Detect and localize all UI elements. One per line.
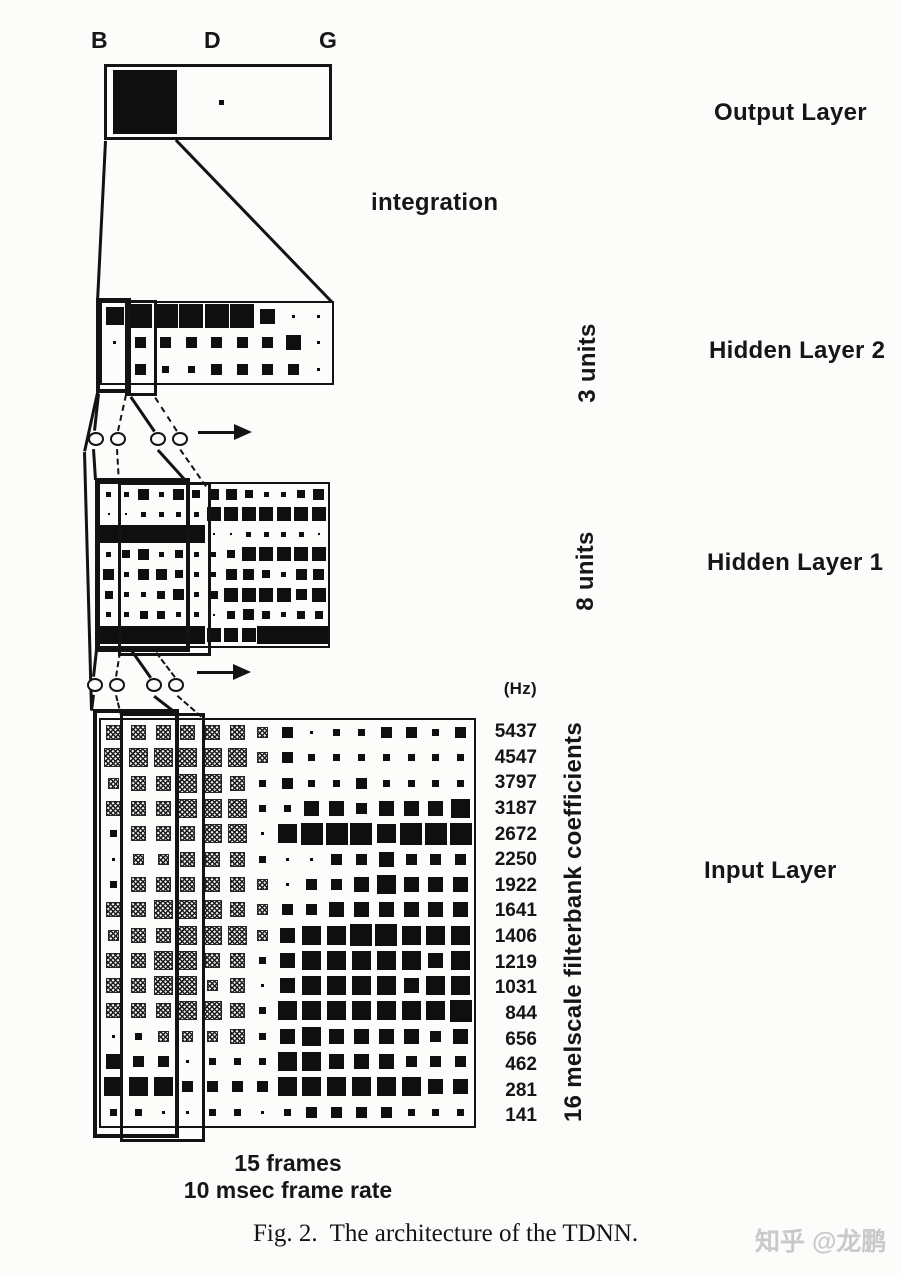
- weight-cell: [381, 1107, 392, 1118]
- weight-cell: [277, 588, 291, 602]
- weight-cell: [306, 1107, 317, 1118]
- weight-cell: [377, 1001, 396, 1020]
- weight-cell: [242, 507, 256, 521]
- weight-cell: [259, 780, 266, 787]
- weight-cell: [281, 532, 286, 537]
- frequency-label: 1406: [437, 926, 537, 948]
- weight-cell: [228, 824, 247, 843]
- weight-cell: [302, 926, 321, 945]
- connector-line: [117, 395, 127, 431]
- weight-cell: [226, 569, 237, 580]
- weight-cell: [230, 1003, 245, 1018]
- connector-line: [93, 650, 98, 677]
- weight-cell: [315, 611, 323, 619]
- weight-cell: [312, 588, 326, 602]
- weight-cell: [257, 626, 275, 644]
- weight-cell: [306, 904, 317, 915]
- tied-weight-circle: [110, 432, 126, 446]
- weight-cell: [257, 904, 268, 915]
- tied-weight-circle: [87, 678, 103, 692]
- weight-cell: [232, 1081, 243, 1092]
- weight-cell: [237, 364, 248, 375]
- hidden-layer-2-units-label: 3 units: [574, 313, 602, 413]
- weight-cell: [404, 1029, 419, 1044]
- weight-cell: [234, 1109, 241, 1116]
- melscale-coefficients-label: 16 melscale filterbank coefficients: [560, 687, 590, 1157]
- frequency-label: 281: [437, 1080, 537, 1102]
- weight-cell: [209, 1058, 216, 1065]
- weight-cell: [404, 978, 419, 993]
- weight-cell: [377, 976, 396, 995]
- weight-cell: [261, 1111, 264, 1114]
- weight-cell: [402, 926, 421, 945]
- weight-cell: [329, 801, 344, 816]
- weight-cell: [259, 1058, 266, 1065]
- weight-cell: [113, 70, 177, 134]
- weight-cell: [375, 924, 397, 946]
- weight-cell: [354, 877, 369, 892]
- weight-cell: [302, 1027, 321, 1046]
- weight-cell: [333, 780, 340, 787]
- weight-cell: [327, 926, 346, 945]
- weight-cell: [383, 780, 390, 787]
- weight-cell: [207, 980, 218, 991]
- weight-cell: [227, 611, 235, 619]
- frequency-label: 3187: [437, 798, 537, 820]
- connector-line: [97, 141, 107, 302]
- weight-cell: [358, 729, 365, 736]
- weight-cell: [377, 1077, 396, 1096]
- integration-label: integration: [371, 189, 498, 217]
- frames-footnote: 15 frames 10 msec frame rate: [128, 1150, 448, 1204]
- weight-cell: [294, 507, 308, 521]
- connector-line: [84, 452, 93, 710]
- weight-cell: [207, 1031, 218, 1042]
- output-layer-box: [104, 64, 332, 140]
- weight-cell: [404, 801, 419, 816]
- weight-cell: [277, 507, 291, 521]
- weight-cell: [333, 754, 340, 761]
- weight-cell: [205, 852, 220, 867]
- weight-cell: [213, 533, 215, 535]
- hz-unit-label: (Hz): [437, 679, 537, 699]
- weight-cell: [203, 824, 222, 843]
- weight-cell: [234, 1058, 241, 1065]
- weight-cell: [230, 978, 245, 993]
- weight-cell: [242, 628, 256, 642]
- weight-cell: [237, 337, 248, 348]
- weight-cell: [211, 337, 222, 348]
- weight-cell: [219, 100, 224, 105]
- weight-cell: [230, 533, 232, 535]
- weight-cell: [381, 727, 392, 738]
- weight-cell: [304, 801, 319, 816]
- weight-cell: [310, 626, 328, 644]
- weight-cell: [352, 1001, 371, 1020]
- weight-cell: [230, 1029, 245, 1044]
- weight-cell: [354, 1054, 369, 1069]
- weight-cell: [259, 507, 273, 521]
- weight-cell: [259, 588, 273, 602]
- weight-cell: [292, 626, 310, 644]
- weight-cell: [262, 570, 270, 578]
- weight-cell: [331, 1107, 342, 1118]
- weight-cell: [297, 490, 305, 498]
- weight-cell: [286, 883, 289, 886]
- weight-cell: [262, 364, 273, 375]
- connector-line: [154, 397, 178, 432]
- weight-cell: [257, 727, 268, 738]
- weight-cell: [228, 748, 247, 767]
- weight-cell: [203, 799, 222, 818]
- weight-cell: [230, 852, 245, 867]
- weight-cell: [327, 1077, 346, 1096]
- weight-cell: [379, 1054, 394, 1069]
- weight-cell: [317, 341, 320, 344]
- output-layer-units: [107, 67, 329, 137]
- weight-cell: [356, 803, 367, 814]
- frequency-label: 1641: [437, 900, 537, 922]
- weight-cell: [162, 366, 169, 373]
- weight-cell: [242, 588, 256, 602]
- frame-window: [118, 482, 211, 656]
- phoneme-label-d: D: [204, 27, 221, 54]
- weight-cell: [203, 1001, 222, 1020]
- weight-cell: [186, 337, 197, 348]
- weight-cell: [257, 879, 268, 890]
- weight-cell: [179, 304, 203, 328]
- weight-cell: [318, 533, 320, 535]
- weight-cell: [262, 337, 273, 348]
- weight-cell: [284, 1109, 291, 1116]
- weight-cell: [211, 552, 216, 557]
- weight-cell: [356, 778, 367, 789]
- weight-cell: [282, 778, 293, 789]
- weight-cell: [302, 976, 321, 995]
- weight-cell: [205, 953, 220, 968]
- weight-cell: [379, 1029, 394, 1044]
- weight-cell: [278, 1052, 297, 1071]
- weight-cell: [243, 569, 254, 580]
- weight-cell: [282, 727, 293, 738]
- weight-cell: [259, 547, 273, 561]
- weight-cell: [203, 926, 222, 945]
- weight-cell: [354, 902, 369, 917]
- frequency-label: 4547: [437, 747, 537, 769]
- connector-line: [175, 139, 333, 303]
- frequency-label: 1031: [437, 977, 537, 999]
- weight-cell: [352, 976, 371, 995]
- weight-cell: [408, 1109, 415, 1116]
- weight-cell: [331, 854, 342, 865]
- weight-cell: [281, 572, 286, 577]
- connector-line: [130, 396, 156, 432]
- weight-cell: [224, 507, 238, 521]
- weight-cell: [243, 609, 254, 620]
- weight-cell: [282, 904, 293, 915]
- weight-cell: [203, 774, 222, 793]
- weight-cell: [302, 951, 321, 970]
- weight-cell: [280, 1029, 295, 1044]
- weight-cell: [313, 569, 324, 580]
- weight-cell: [259, 1007, 266, 1014]
- weight-cell: [260, 309, 275, 324]
- weight-cell: [377, 951, 396, 970]
- weight-cell: [286, 335, 301, 350]
- frequency-label: 844: [437, 1003, 537, 1025]
- frame-window: [125, 300, 157, 396]
- weight-cell: [406, 1056, 417, 1067]
- weight-cell: [356, 854, 367, 865]
- weight-cell: [246, 532, 251, 537]
- weight-cell: [211, 572, 216, 577]
- weight-cell: [280, 978, 295, 993]
- tied-weight-circle: [88, 432, 104, 446]
- weight-cell: [350, 924, 372, 946]
- weight-cell: [278, 1077, 297, 1096]
- weight-cell: [331, 879, 342, 890]
- weight-cell: [245, 490, 253, 498]
- weight-cell: [226, 489, 237, 500]
- weight-cell: [402, 1077, 421, 1096]
- weight-cell: [327, 1001, 346, 1020]
- weight-cell: [404, 902, 419, 917]
- weight-cell: [308, 780, 315, 787]
- zhihu-watermark: 知乎 @龙鹏: [755, 1222, 886, 1258]
- weight-cell: [278, 1001, 297, 1020]
- weight-cell: [317, 368, 320, 371]
- weight-cell: [406, 854, 417, 865]
- weight-cell: [402, 1001, 421, 1020]
- weight-cell: [278, 824, 297, 843]
- frequency-label: 656: [437, 1029, 537, 1051]
- weight-cell: [299, 532, 304, 537]
- weight-cell: [264, 492, 269, 497]
- weight-cell: [350, 823, 372, 845]
- weight-cell: [224, 628, 238, 642]
- weight-cell: [282, 752, 293, 763]
- weight-cell: [205, 725, 220, 740]
- weight-cell: [230, 304, 254, 328]
- weight-cell: [209, 1109, 216, 1116]
- weight-cell: [230, 902, 245, 917]
- tied-weight-circle: [146, 678, 162, 692]
- weight-cell: [205, 304, 229, 328]
- weight-cell: [329, 1054, 344, 1069]
- weight-cell: [257, 930, 268, 941]
- weight-cell: [301, 823, 323, 845]
- weight-cell: [296, 589, 307, 600]
- weight-cell: [188, 366, 195, 373]
- weight-cell: [207, 1081, 218, 1092]
- frequency-label: 5437: [437, 721, 537, 743]
- weight-cell: [379, 852, 394, 867]
- connector-line: [93, 449, 97, 480]
- frequency-label: 2250: [437, 849, 537, 871]
- weight-cell: [259, 856, 266, 863]
- weight-cell: [224, 588, 238, 602]
- weight-cell: [383, 754, 390, 761]
- weight-cell: [312, 507, 326, 521]
- weight-cell: [310, 731, 313, 734]
- weight-cell: [284, 805, 291, 812]
- weight-cell: [302, 1052, 321, 1071]
- tied-weight-circle: [150, 432, 166, 446]
- weight-cell: [228, 799, 247, 818]
- weight-cell: [242, 547, 256, 561]
- weight-cell: [230, 877, 245, 892]
- weight-cell: [302, 1001, 321, 1020]
- weight-cell: [230, 953, 245, 968]
- time-arrow-icon: [198, 431, 236, 434]
- tied-weight-circle: [109, 678, 125, 692]
- weight-cell: [292, 315, 295, 318]
- weight-cell: [308, 754, 315, 761]
- weight-cell: [327, 951, 346, 970]
- weight-cell: [213, 614, 215, 616]
- weight-cell: [281, 492, 286, 497]
- hidden-layer-1-label: Hidden Layer 1: [707, 549, 883, 577]
- weight-cell: [203, 748, 222, 767]
- weight-cell: [228, 926, 247, 945]
- hidden-layer-2-label: Hidden Layer 2: [709, 337, 885, 365]
- phoneme-label-g: G: [319, 27, 337, 54]
- frequency-label: 1922: [437, 875, 537, 897]
- weight-cell: [326, 823, 348, 845]
- weight-cell: [261, 832, 264, 835]
- weight-cell: [275, 626, 293, 644]
- weight-cell: [400, 823, 422, 845]
- weight-cell: [377, 824, 396, 843]
- frequency-label: 1219: [437, 952, 537, 974]
- hidden-layer-1-units-label: 8 units: [572, 521, 600, 621]
- weight-cell: [264, 532, 269, 537]
- weight-cell: [205, 877, 220, 892]
- figure-caption: Fig. 2. The architecture of the TDNN.: [253, 1220, 638, 1248]
- weight-cell: [356, 1107, 367, 1118]
- weight-cell: [404, 877, 419, 892]
- frequency-label: 2672: [437, 824, 537, 846]
- weight-cell: [203, 900, 222, 919]
- tdnn-figure: B D G Output Layer integration 3 units H…: [0, 0, 902, 1274]
- time-arrow-head-icon: [233, 664, 251, 680]
- frequency-label: 462: [437, 1054, 537, 1076]
- weight-cell: [294, 547, 308, 561]
- output-layer-label: Output Layer: [714, 99, 867, 127]
- weight-cell: [257, 1081, 268, 1092]
- weight-cell: [402, 951, 421, 970]
- phoneme-label-b: B: [91, 27, 108, 54]
- weight-cell: [379, 801, 394, 816]
- weight-cell: [281, 612, 286, 617]
- weight-cell: [211, 364, 222, 375]
- weight-cell: [280, 928, 295, 943]
- weight-cell: [277, 547, 291, 561]
- weight-cell: [280, 953, 295, 968]
- weight-cell: [306, 879, 317, 890]
- weight-cell: [406, 727, 417, 738]
- frequency-label: 141: [437, 1105, 537, 1127]
- time-arrow-head-icon: [234, 424, 252, 440]
- frames-count-label: 15 frames: [128, 1150, 448, 1177]
- weight-cell: [327, 976, 346, 995]
- time-arrow-icon: [197, 671, 235, 674]
- weight-cell: [310, 858, 313, 861]
- weight-cell: [352, 951, 371, 970]
- weight-cell: [312, 547, 326, 561]
- weight-cell: [354, 1029, 369, 1044]
- weight-cell: [154, 304, 178, 328]
- frame-window: [120, 713, 205, 1142]
- weight-cell: [259, 1033, 266, 1040]
- weight-cell: [358, 754, 365, 761]
- weight-cell: [297, 611, 305, 619]
- input-layer-label: Input Layer: [704, 857, 837, 885]
- tied-weight-circle: [172, 432, 188, 446]
- weight-cell: [377, 875, 396, 894]
- weight-cell: [408, 780, 415, 787]
- weight-cell: [261, 984, 264, 987]
- weight-cell: [296, 569, 307, 580]
- weight-cell: [160, 337, 171, 348]
- weight-cell: [262, 611, 270, 619]
- weight-cell: [333, 729, 340, 736]
- weight-cell: [379, 902, 394, 917]
- weight-cell: [288, 364, 299, 375]
- weight-cell: [230, 725, 245, 740]
- weight-cell: [259, 805, 266, 812]
- weight-cell: [259, 957, 266, 964]
- weight-cell: [317, 315, 320, 318]
- frame-rate-label: 10 msec frame rate: [128, 1177, 448, 1204]
- frequency-label: 3797: [437, 772, 537, 794]
- weight-cell: [257, 752, 268, 763]
- weight-cell: [313, 489, 324, 500]
- weight-cell: [227, 550, 235, 558]
- weight-cell: [286, 858, 289, 861]
- weight-cell: [230, 776, 245, 791]
- weight-cell: [352, 1077, 371, 1096]
- weight-cell: [329, 902, 344, 917]
- weight-cell: [329, 1029, 344, 1044]
- tied-weight-circle: [168, 678, 184, 692]
- weight-cell: [302, 1077, 321, 1096]
- weight-cell: [408, 754, 415, 761]
